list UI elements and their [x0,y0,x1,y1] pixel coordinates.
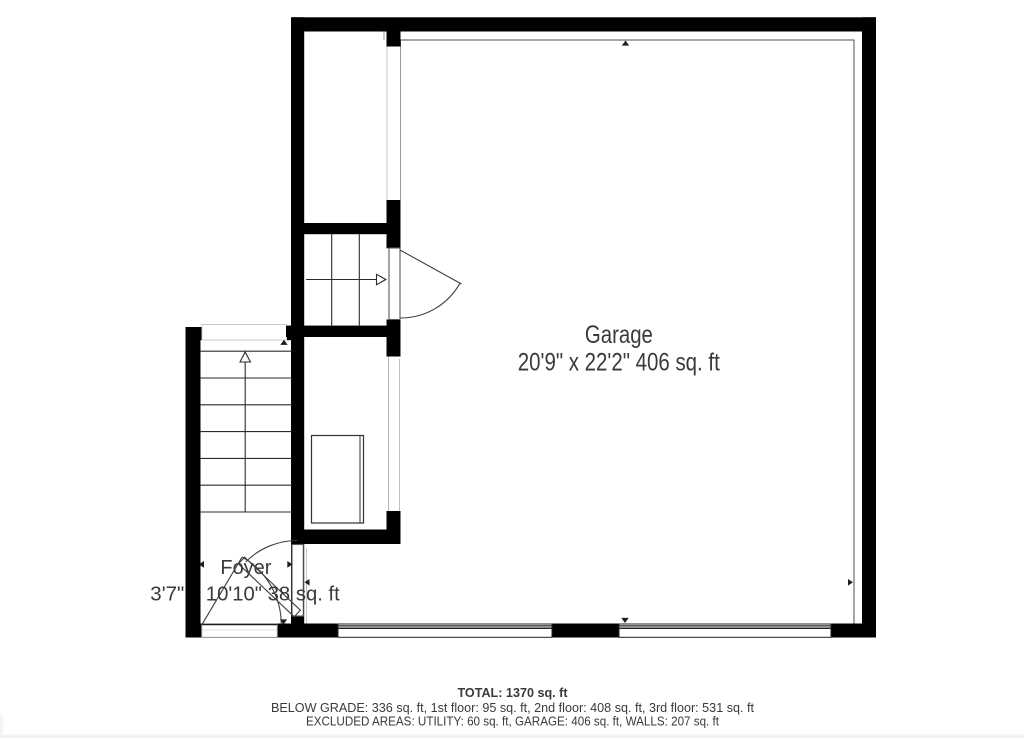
svg-text:10'10" 38 sq. ft: 10'10" 38 sq. ft [206,583,340,605]
svg-text:3'7": 3'7" [150,583,184,605]
svg-text:Foyer: Foyer [220,557,271,579]
svg-text:20'9" x 22'2" 406 sq. ft: 20'9" x 22'2" 406 sq. ft [518,348,720,376]
svg-text:EXCLUDED AREAS: UTILITY: 60 sq: EXCLUDED AREAS: UTILITY: 60 sq. ft, GARA… [306,715,719,729]
svg-text:Garage: Garage [585,321,653,349]
svg-text:TOTAL: 1370 sq. ft: TOTAL: 1370 sq. ft [457,686,568,700]
svg-text:BELOW GRADE: 336 sq. ft, 1st f: BELOW GRADE: 336 sq. ft, 1st floor: 95 s… [271,701,754,715]
